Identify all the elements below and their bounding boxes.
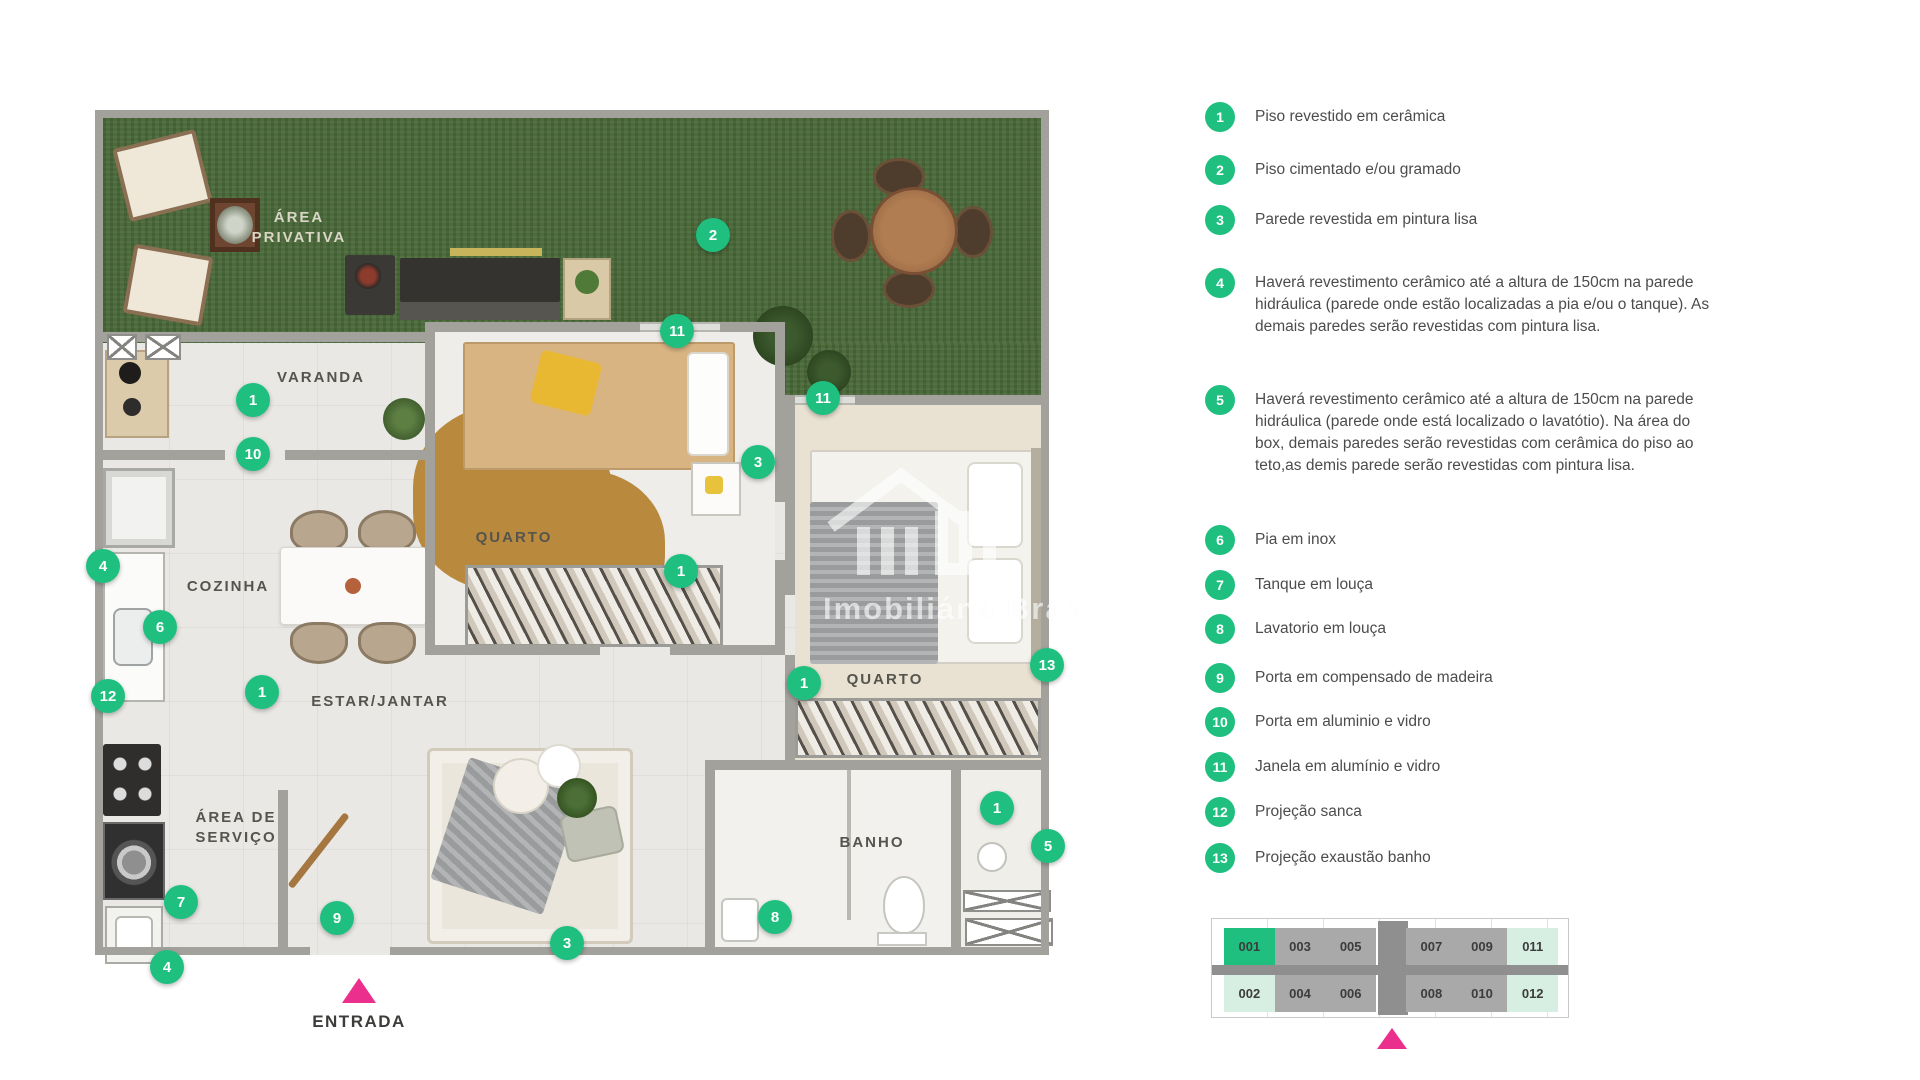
legend-item-3: 3Parede revestida em pintura lisa — [1205, 205, 1477, 235]
bbq-grill-bar — [450, 248, 542, 256]
keyplan-corridor-gap — [1376, 928, 1406, 965]
varanda-cabinet — [105, 350, 169, 438]
keyplan-unit-002: 002 — [1224, 975, 1275, 1012]
legend-item-6: 6Pia em inox — [1205, 525, 1336, 555]
plan-marker-1: 1 — [236, 383, 270, 417]
plan-marker-1: 1 — [245, 675, 279, 709]
wall-segment — [278, 790, 288, 947]
keyplan-unit-001: 001 — [1224, 928, 1275, 965]
keyplan-unit-004: 004 — [1275, 975, 1326, 1012]
keyplan-corridor-gap — [1376, 975, 1406, 1012]
legend-badge-2: 2 — [1205, 155, 1235, 185]
washing-machine — [103, 822, 165, 900]
dining-chair-2 — [358, 510, 416, 552]
legend-text-10: Porta em aluminio e vidro — [1255, 707, 1431, 733]
legend-item-1: 1Piso revestido em cerâmica — [1205, 102, 1445, 132]
keyplan-row-1: 001003005007009011 — [1224, 928, 1558, 965]
legend-badge-6: 6 — [1205, 525, 1235, 555]
wall-segment — [951, 770, 961, 947]
wall-segment — [425, 645, 600, 655]
legend-text-4: Haverá revestimento cerâmico até a altur… — [1255, 268, 1723, 338]
plan-marker-13: 13 — [1030, 648, 1064, 682]
legend-item-12: 12Projeção sanca — [1205, 797, 1362, 827]
plan-marker-7: 7 — [164, 885, 198, 919]
plan-marker-11: 11 — [806, 381, 840, 415]
room-label-area-de-servico: ÁREA DESERVIÇO — [195, 808, 276, 849]
fridge — [103, 468, 175, 548]
plan-marker-11: 11 — [660, 314, 694, 348]
keyplan-entrance-triangle — [1377, 1028, 1407, 1049]
closet-shelf-1 — [963, 890, 1051, 912]
legend-text-2: Piso cimentado e/ou gramado — [1255, 155, 1461, 181]
entrance-label: ENTRADA — [312, 1012, 406, 1032]
wall-segment — [285, 450, 425, 460]
wall-segment — [95, 110, 103, 955]
closet-shelf-2 — [965, 918, 1053, 946]
bbq-counter — [400, 258, 560, 320]
toilet — [883, 876, 925, 934]
quarto2-blanket — [810, 502, 938, 664]
wall-segment — [425, 322, 435, 655]
keyplan-unit-006: 006 — [1325, 975, 1376, 1012]
keyplan-unit-005: 005 — [1325, 928, 1376, 965]
vent-hatch-2 — [145, 334, 181, 360]
plan-marker-1: 1 — [980, 791, 1014, 825]
legend-item-8: 8Lavatorio em louça — [1205, 614, 1386, 644]
legend-item-9: 9Porta em compensado de madeira — [1205, 663, 1493, 693]
page: Imobiliána Bras ENTRADA 2111111034161311… — [0, 0, 1920, 1080]
stove — [103, 744, 161, 816]
wall-segment — [425, 322, 785, 332]
plan-marker-2: 2 — [696, 218, 730, 252]
wall-segment — [95, 110, 1049, 118]
plan-marker-5: 5 — [1031, 829, 1065, 863]
plan-marker-6: 6 — [143, 610, 177, 644]
plan-marker-1: 1 — [664, 554, 698, 588]
wall-segment — [95, 450, 225, 460]
keyplan-unit-012: 012 — [1507, 975, 1558, 1012]
room-label-area-privativa: ÁREAPRIVATIVA — [252, 208, 347, 249]
legend-badge-4: 4 — [1205, 268, 1235, 298]
legend-badge-7: 7 — [1205, 570, 1235, 600]
legend-badge-5: 5 — [1205, 385, 1235, 415]
room-label-estar-jantar: ESTAR/JANTAR — [311, 692, 449, 712]
legend-item-7: 7Tanque em louça — [1205, 570, 1373, 600]
room-label-cozinha: COZINHA — [187, 577, 269, 597]
plan-marker-8: 8 — [758, 900, 792, 934]
wall-segment — [390, 947, 1049, 955]
plan-marker-4: 4 — [150, 950, 184, 984]
legend-item-5: 5Haverá revestimento cerâmico até a altu… — [1205, 385, 1723, 477]
room-label-quarto-2: QUARTO — [847, 670, 924, 690]
legend-badge-8: 8 — [1205, 614, 1235, 644]
legend-badge-1: 1 — [1205, 102, 1235, 132]
legend-text-6: Pia em inox — [1255, 525, 1336, 551]
keyplan-row-2: 002004006008010012 — [1224, 975, 1558, 1012]
plan-marker-10: 10 — [236, 437, 270, 471]
bbq-cabinet-plant — [575, 270, 599, 294]
wall-segment — [775, 560, 785, 655]
floor-plan: Imobiliána Bras ENTRADA 2111111034161311… — [95, 110, 1049, 955]
patio-table — [873, 190, 955, 272]
legend-badge-9: 9 — [1205, 663, 1235, 693]
legend-badge-13: 13 — [1205, 843, 1235, 873]
keyplan-unit-011: 011 — [1507, 928, 1558, 965]
legend-text-7: Tanque em louça — [1255, 570, 1373, 596]
wall-segment — [705, 760, 715, 947]
legend-text-13: Projeção exaustão banho — [1255, 843, 1431, 869]
bbq-side-stove-burner — [355, 263, 381, 289]
plan-marker-1: 1 — [787, 666, 821, 700]
legend-badge-10: 10 — [1205, 707, 1235, 737]
legend-text-11: Janela em alumínio e vidro — [1255, 752, 1440, 778]
quarto2-pillow-1 — [967, 462, 1023, 548]
planter-plant — [217, 206, 253, 244]
legend-item-2: 2Piso cimentado e/ou gramado — [1205, 155, 1461, 185]
varanda-pot — [123, 398, 141, 416]
legend-text-3: Parede revestida em pintura lisa — [1255, 205, 1477, 231]
legend-text-1: Piso revestido em cerâmica — [1255, 102, 1445, 128]
legend-text-9: Porta em compensado de madeira — [1255, 663, 1493, 689]
keyplan-unit-009: 009 — [1457, 928, 1508, 965]
legend-text-12: Projeção sanca — [1255, 797, 1362, 823]
room-label-banho: BANHO — [840, 833, 905, 853]
room-label-quarto-1: QUARTO — [476, 528, 553, 548]
legend-item-11: 11Janela em alumínio e vidro — [1205, 752, 1440, 782]
quarto2-headboard — [1031, 448, 1041, 666]
keyplan-unit-007: 007 — [1406, 928, 1457, 965]
entry-door-leaf — [287, 812, 349, 889]
dining-table-decor — [345, 578, 361, 594]
varanda-plant — [383, 398, 425, 440]
legend: 1Piso revestido em cerâmica2Piso cimenta… — [1205, 100, 1785, 910]
keyplan-unit-010: 010 — [1457, 975, 1508, 1012]
vent-hatch-1 — [107, 334, 137, 360]
legend-badge-12: 12 — [1205, 797, 1235, 827]
quarto2-wardrobe — [795, 698, 1041, 758]
legend-item-13: 13Projeção exaustão banho — [1205, 843, 1431, 873]
varanda-kettle — [119, 362, 141, 384]
legend-text-5: Haverá revestimento cerâmico até a altur… — [1255, 385, 1723, 477]
lounge-chair-2 — [123, 244, 214, 327]
wall-segment — [705, 760, 1049, 770]
legend-badge-11: 11 — [1205, 752, 1235, 782]
legend-item-10: 10Porta em aluminio e vidro — [1205, 707, 1431, 737]
wall-segment — [670, 645, 785, 655]
dining-chair-1 — [290, 510, 348, 552]
plan-marker-12: 12 — [91, 679, 125, 713]
banho-sink — [721, 898, 759, 942]
keyplan: 001003005007009011002004006008010012 — [1211, 918, 1569, 1018]
dining-chair-3 — [290, 622, 348, 664]
quarto1-nightstand-decor — [705, 476, 723, 494]
plan-marker-3: 3 — [550, 926, 584, 960]
closet-basin — [977, 842, 1007, 872]
living-plant — [557, 778, 597, 818]
plan-marker-9: 9 — [320, 901, 354, 935]
wall-segment — [775, 322, 785, 502]
legend-item-4: 4Haverá revestimento cerâmico até a altu… — [1205, 268, 1723, 338]
legend-text-8: Lavatorio em louça — [1255, 614, 1386, 640]
quarto1-pillow — [687, 352, 729, 456]
patio-chair-left — [831, 210, 871, 262]
wall-segment — [95, 947, 310, 955]
toilet-tank — [877, 932, 927, 946]
keyplan-unit-003: 003 — [1275, 928, 1326, 965]
keyplan-unit-008: 008 — [1406, 975, 1457, 1012]
patio-chair-bottom — [883, 270, 935, 308]
patio-chair-right — [953, 206, 993, 258]
entrance-triangle — [342, 978, 376, 1003]
wall-segment — [785, 395, 795, 595]
quarto2-pillow-2 — [967, 558, 1023, 644]
plan-marker-4: 4 — [86, 549, 120, 583]
room-label-varanda: VARANDA — [277, 368, 365, 388]
legend-badge-3: 3 — [1205, 205, 1235, 235]
plan-marker-3: 3 — [741, 445, 775, 479]
dining-chair-4 — [358, 622, 416, 664]
